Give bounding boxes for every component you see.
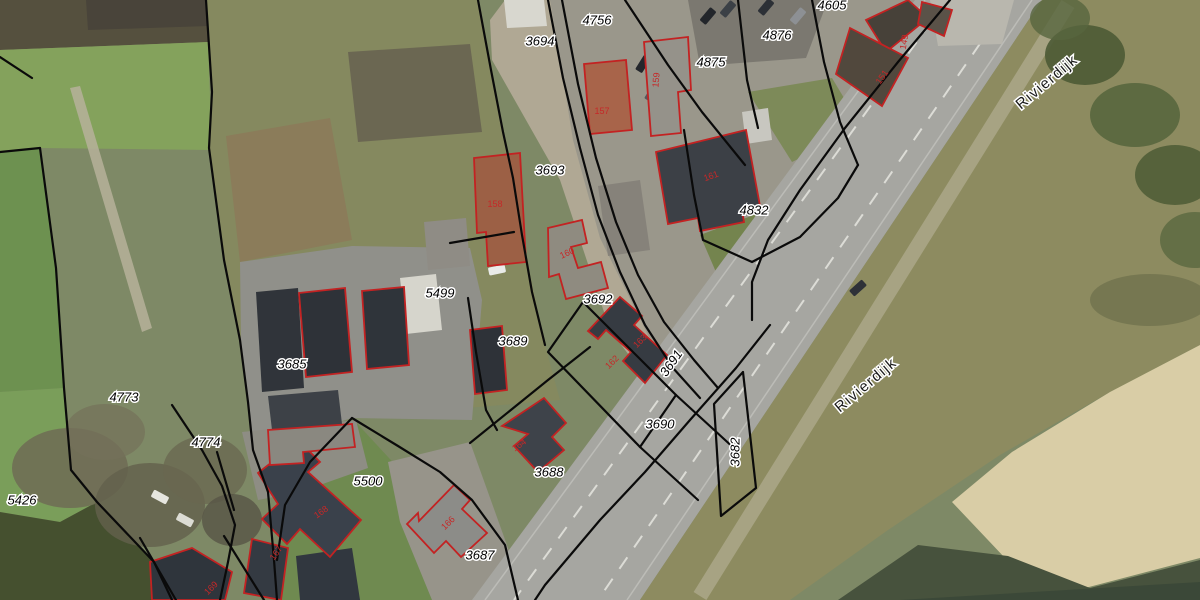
- building-roof: [424, 218, 470, 270]
- paddock: [226, 118, 352, 262]
- building-roof: [268, 390, 342, 430]
- parcel-label-3685: 3685: [278, 357, 308, 372]
- aerial-map-view[interactable]: 1571581591601611621631641661671681691491…: [0, 0, 1200, 600]
- building-number-159: 159: [650, 72, 661, 88]
- parcel-label-3692: 3692: [584, 292, 614, 307]
- registered-building-outline: [584, 60, 632, 134]
- building-roof: [256, 288, 304, 392]
- plowed-strip: [86, 0, 208, 30]
- parcel-label-3694: 3694: [526, 34, 555, 49]
- map-canvas[interactable]: 1571581591601611621631641661671681691491…: [0, 0, 1200, 600]
- parcel-label-3689: 3689: [499, 334, 528, 349]
- registered-building-outline: [362, 287, 409, 369]
- registered-building-outline: [299, 288, 352, 377]
- garden-rows: [348, 44, 482, 142]
- parcel-label-5426: 5426: [8, 493, 38, 508]
- parcel-label-4756: 4756: [583, 13, 613, 28]
- parcel-label-4605: 4605: [818, 0, 848, 13]
- parcel-label-4875: 4875: [697, 55, 727, 70]
- building-number-158: 158: [487, 199, 502, 209]
- parcel-label-5499: 5499: [426, 286, 455, 301]
- parcel-label-3688: 3688: [535, 465, 565, 480]
- parcel-label-3690: 3690: [646, 417, 676, 432]
- parcel-label-4876: 4876: [763, 28, 793, 43]
- parcel-label-3682: 3682: [728, 437, 743, 467]
- parcel-label-3687: 3687: [466, 548, 496, 563]
- parcel-label-5500: 5500: [354, 474, 384, 489]
- parcel-label-4832: 4832: [740, 203, 770, 218]
- parcel-label-3693: 3693: [536, 163, 566, 178]
- parcel-label-4774: 4774: [192, 435, 221, 450]
- parcel-label-4773: 4773: [110, 390, 140, 405]
- field-bright: [0, 42, 212, 152]
- tree-blob: [65, 404, 145, 460]
- building-number-157: 157: [594, 106, 609, 116]
- building-roof: [504, 0, 547, 28]
- tree-top-right: [1090, 83, 1180, 147]
